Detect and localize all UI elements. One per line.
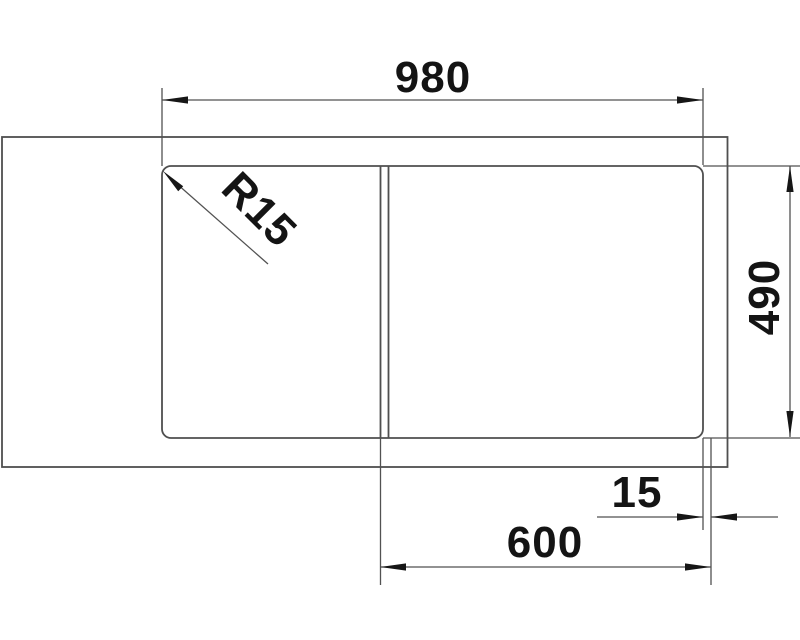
sink-outline-group <box>2 137 728 467</box>
dimension-edge-offset: 15 <box>597 438 778 585</box>
dim-label-depth: 490 <box>740 259 789 335</box>
arrowhead-right-icon <box>677 513 703 520</box>
dim-label-overall-width: 980 <box>395 53 471 102</box>
arrowhead-up-icon <box>786 166 793 192</box>
dim-label-bowl-width: 600 <box>507 518 583 567</box>
technical-drawing: 980 490 R15 15 <box>0 0 800 640</box>
arrowhead-left-icon <box>711 513 737 520</box>
dim-label-corner-radius: R15 <box>212 163 306 257</box>
arrowhead-down-icon <box>786 411 793 437</box>
sink-dimension-drawing-svg: 980 490 R15 15 <box>0 0 800 640</box>
radius-callout: R15 <box>163 163 306 264</box>
arrowhead-left-icon <box>162 96 188 103</box>
arrowhead-right-icon <box>677 96 703 103</box>
radius-arrowhead-icon <box>163 171 183 191</box>
dim-label-edge-offset: 15 <box>612 468 663 517</box>
dimension-overall-width: 980 <box>162 53 703 166</box>
arrowhead-right-icon <box>685 563 711 570</box>
sink-outer-outline <box>2 137 728 467</box>
dimension-depth: 490 <box>703 166 800 438</box>
arrowhead-left-icon <box>380 563 406 570</box>
